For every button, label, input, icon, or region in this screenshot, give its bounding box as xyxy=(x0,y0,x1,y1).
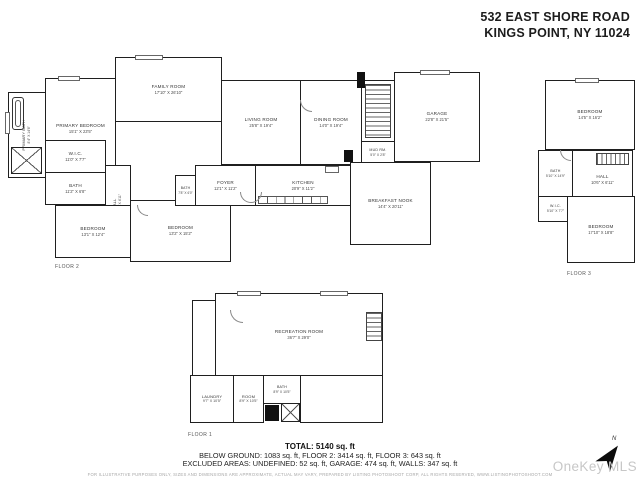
stairs xyxy=(366,312,382,341)
shower-icon xyxy=(281,403,300,422)
room-dims: 8'9" X 10'5" xyxy=(239,399,257,404)
room-name: RECREATION ROOM xyxy=(275,329,323,335)
floor1-label: FLOOR 1 xyxy=(188,432,212,438)
room-dims: 8'9" X 10'5" xyxy=(273,390,290,394)
disclaimer-text: FOR ILLUSTRATIVE PURPOSES ONLY, SIZES AN… xyxy=(0,472,640,477)
room-dims: 9'7" X 10'5" xyxy=(202,399,222,404)
window xyxy=(237,291,261,296)
floor1-plan: RECREATION ROOM 36'7" X 29'0" LAUNDRY 9'… xyxy=(0,0,640,480)
onekey-mls-watermark: OneKey MLS xyxy=(553,459,637,474)
room-dims: 36'7" X 29'0" xyxy=(275,335,323,340)
room-f1-bath: BATH 8'9" X 10'5" xyxy=(263,375,301,404)
area-summary: TOTAL: 5140 sq. ft BELOW GROUND: 1083 sq… xyxy=(0,442,640,477)
window xyxy=(320,291,348,296)
room-laundry: LAUNDRY 9'7" X 10'5" xyxy=(190,375,234,423)
rec-south-area xyxy=(300,375,383,423)
mechanical-icon xyxy=(265,405,279,421)
excluded-areas: EXCLUDED AREAS: UNDEFINED: 52 sq. ft, GA… xyxy=(0,460,640,469)
room-basement-room: ROOM 8'9" X 10'5" xyxy=(233,375,264,423)
room-recreation: RECREATION ROOM 36'7" X 29'0" xyxy=(215,293,383,376)
rec-west-wing xyxy=(192,300,216,376)
